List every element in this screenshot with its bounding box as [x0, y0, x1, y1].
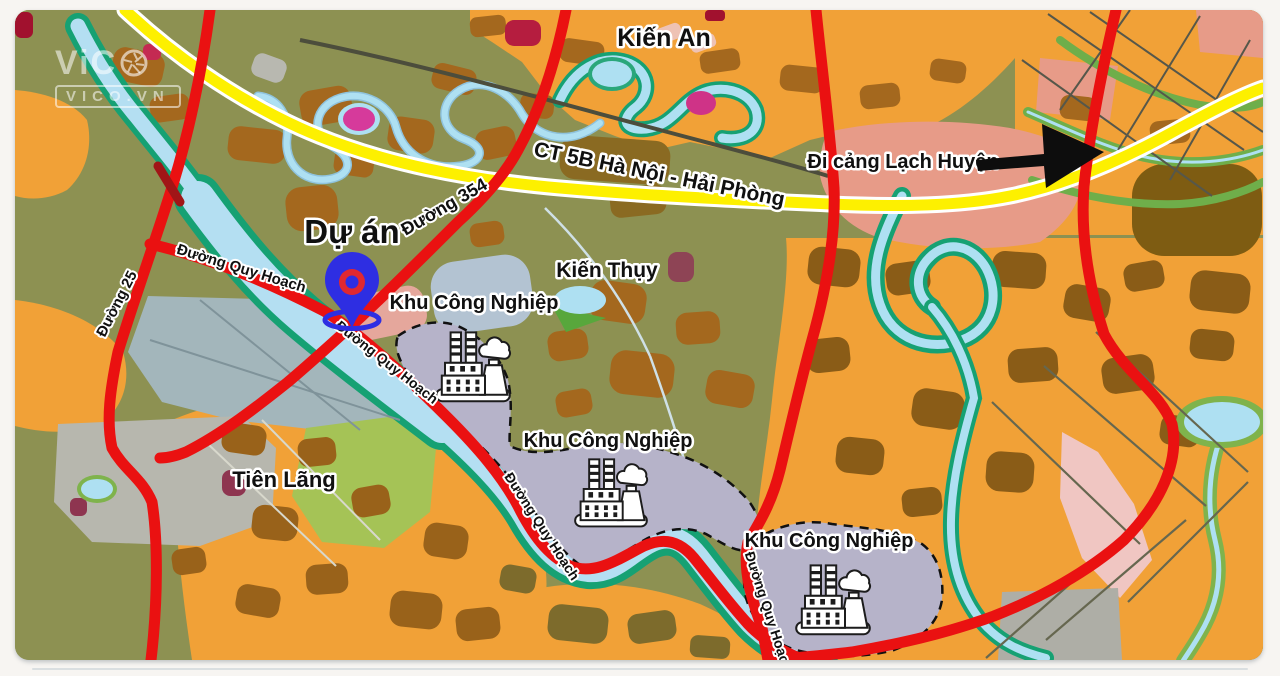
land-parcel	[675, 311, 721, 346]
land-parcel	[859, 82, 901, 110]
watermark-brand: ViC	[55, 46, 181, 80]
label-kien-thuy: Kiến Thụy	[556, 259, 658, 282]
label-tien-lang: Tiên Lãng	[232, 467, 336, 492]
land-parcel	[546, 603, 609, 645]
land-parcel	[388, 589, 443, 630]
land-parcel	[1132, 164, 1262, 256]
land-parcel	[1188, 269, 1252, 315]
land-parcel	[689, 635, 730, 660]
label-industrial-zone: Khu Công Nghiệp	[745, 530, 914, 552]
aperture-icon	[119, 48, 149, 78]
land-parcel	[901, 486, 944, 518]
watermark-brand-text: ViC	[55, 46, 117, 80]
watermark: ViC VICO.VN	[55, 46, 181, 108]
land-parcel	[70, 498, 87, 516]
label-project: Dự án	[304, 213, 399, 250]
land-parcel	[1189, 328, 1236, 362]
land-parcel	[15, 12, 33, 38]
land-parcel	[297, 436, 338, 468]
label-port-direction: Đi cảng Lạch Huyện	[807, 151, 998, 173]
planning-map: Kiến An CT 5B Hà Nội - Hải Phòng Đi cảng…	[15, 10, 1263, 660]
land-parcel	[305, 563, 349, 596]
land-parcel	[705, 10, 725, 21]
land-parcel	[226, 125, 287, 165]
label-kien-an: Kiến An	[617, 24, 711, 52]
label-industrial-zone: Khu Công Nghiệp	[390, 292, 559, 314]
frame-shadow	[32, 668, 1248, 670]
land-parcel	[454, 606, 501, 642]
land-parcel	[668, 252, 694, 282]
watermark-domain: VICO.VN	[55, 85, 181, 108]
land-parcel	[469, 14, 507, 38]
land-parcel	[1007, 346, 1059, 383]
land-parcel	[985, 450, 1036, 493]
label-industrial-zone: Khu Công Nghiệp	[524, 430, 693, 452]
map-canvas: Kiến An CT 5B Hà Nội - Hải Phòng Đi cảng…	[15, 10, 1263, 660]
land-parcel	[834, 436, 886, 477]
land-parcel	[608, 349, 676, 399]
land-parcel	[505, 20, 541, 46]
